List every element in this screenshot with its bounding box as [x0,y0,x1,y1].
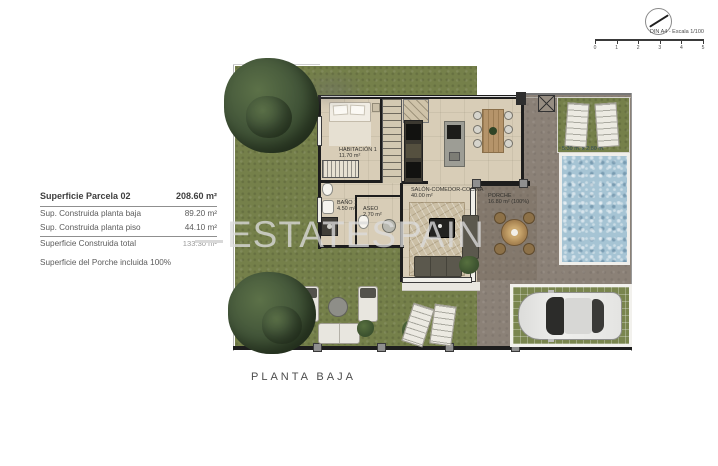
car-roof [564,298,592,334]
table-row: Sup. Construida planta baja 89.20 m² [40,207,217,221]
dining-chair [504,125,513,134]
glass-wall-south [402,277,472,283]
dining-chair [473,111,482,120]
floor-plan-sheet: DIN A4 - Escala 1/100 0 1 2 3 4 5 Superf… [0,0,718,466]
nightstand [372,103,380,112]
wall-east [521,95,524,185]
scale-tick-1: 1 [615,45,618,51]
garden-table [328,297,348,317]
scale-bar: 0 1 2 3 4 5 [595,39,704,53]
porch-chair [523,243,535,255]
room-label-habitacion: HABITACIÓN 1 11.70 m² [339,147,377,159]
scale-line [595,39,704,41]
room-label-salon: SALÓN-COMEDOR-COCINA 40.00 m² [411,187,483,199]
table-total-row: Superficie Construida total 133.30 m² [40,237,217,251]
kitchen-appliance [406,144,421,158]
sun-lounger [564,102,589,147]
washbasin [322,200,334,214]
window-bedroom [317,116,322,146]
scale-tick-4: 4 [680,45,683,51]
table-plant-icon [489,127,497,135]
pool-water [562,156,627,262]
scale-label: DIN A4 - Escala 1/100 [595,29,704,35]
kitchen-appliance [406,124,421,140]
car-mirror [548,290,554,293]
pool [559,153,630,265]
bed-blanket [329,121,371,146]
scale-tick-5: 5 [702,45,705,51]
room-label-bano: BAÑO 1 4.50 m² [337,200,357,212]
scale-tick-3: 3 [658,45,661,51]
table-row: Sup. Construida planta piso 44.10 m² [40,221,217,235]
tree [246,96,292,138]
surface-table-header: Superficie Parcela 02 208.60 m² [40,188,217,207]
pool-dimensions-label: 5.30 m. x 2.80 m. [562,146,605,152]
island-sink [449,152,460,161]
car-windshield [546,297,564,335]
car-mirror [548,339,554,342]
wardrobe [322,160,359,178]
terrace-edge [402,282,480,291]
dining-chair [504,139,513,148]
parcel-label: Superficie Parcela 02 [40,191,131,201]
car [518,292,622,340]
sun-lounger [594,102,619,147]
scale-tick-2: 2 [637,45,640,51]
dining-chair [504,111,513,120]
scale-tick-0: 0 [594,45,597,51]
surface-table: Superficie Parcela 02 208.60 m² Sup. Con… [40,188,217,267]
room-label-porche: PORCHE 16.80 m² (100%) [488,193,529,205]
dining-chair [473,139,482,148]
table-note: Superficie del Porche incluida 100% [40,258,217,267]
porch-chair [494,243,506,255]
tree [262,306,302,344]
porch-chair [523,212,535,224]
kitchen-appliance [406,162,421,178]
stairs [382,99,402,183]
wall-aseo-north [355,195,403,197]
car-rear-window [592,299,604,333]
parcel-value: 208.60 m² [176,191,217,201]
sofa [414,256,462,277]
porch-post [519,179,528,188]
plan-title: PLANTA BAJA [251,371,356,383]
toilet [322,183,333,196]
cooktop [447,125,461,139]
watermark: ESTATESPAIN [227,214,485,256]
watermark-dash [195,240,223,243]
corner-post [516,92,526,105]
dining-chair [473,125,482,134]
fence-post [313,343,322,352]
fence-post [377,343,386,352]
utility-box [538,95,555,112]
